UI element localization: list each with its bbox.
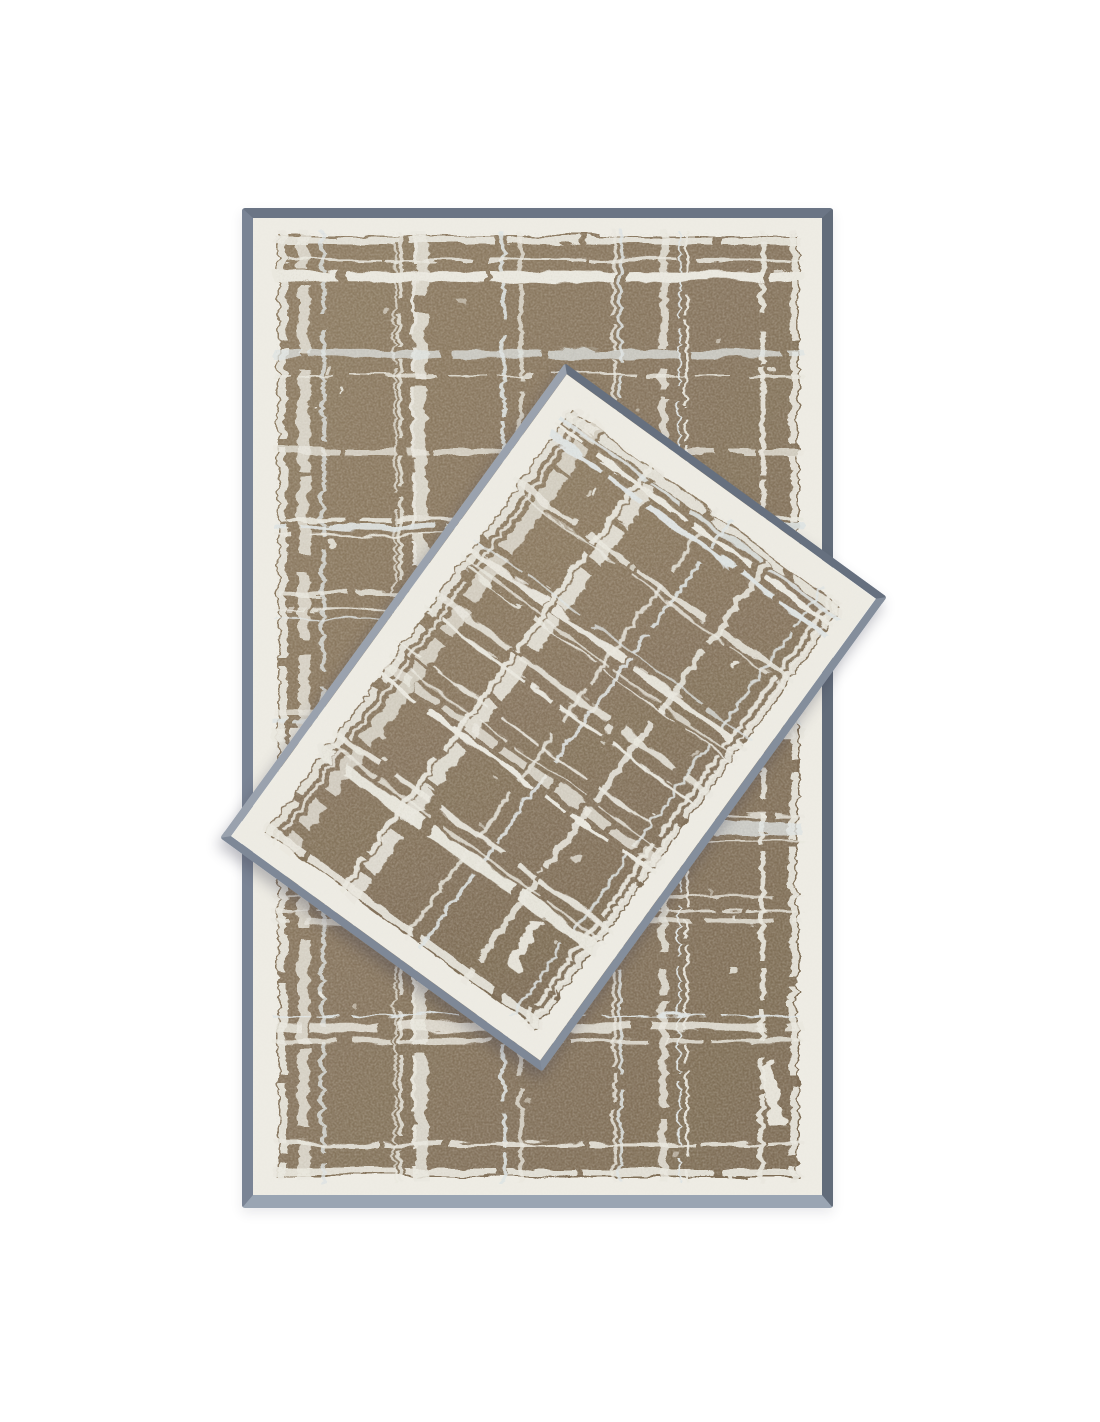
product-photo-scene — [0, 0, 1100, 1422]
